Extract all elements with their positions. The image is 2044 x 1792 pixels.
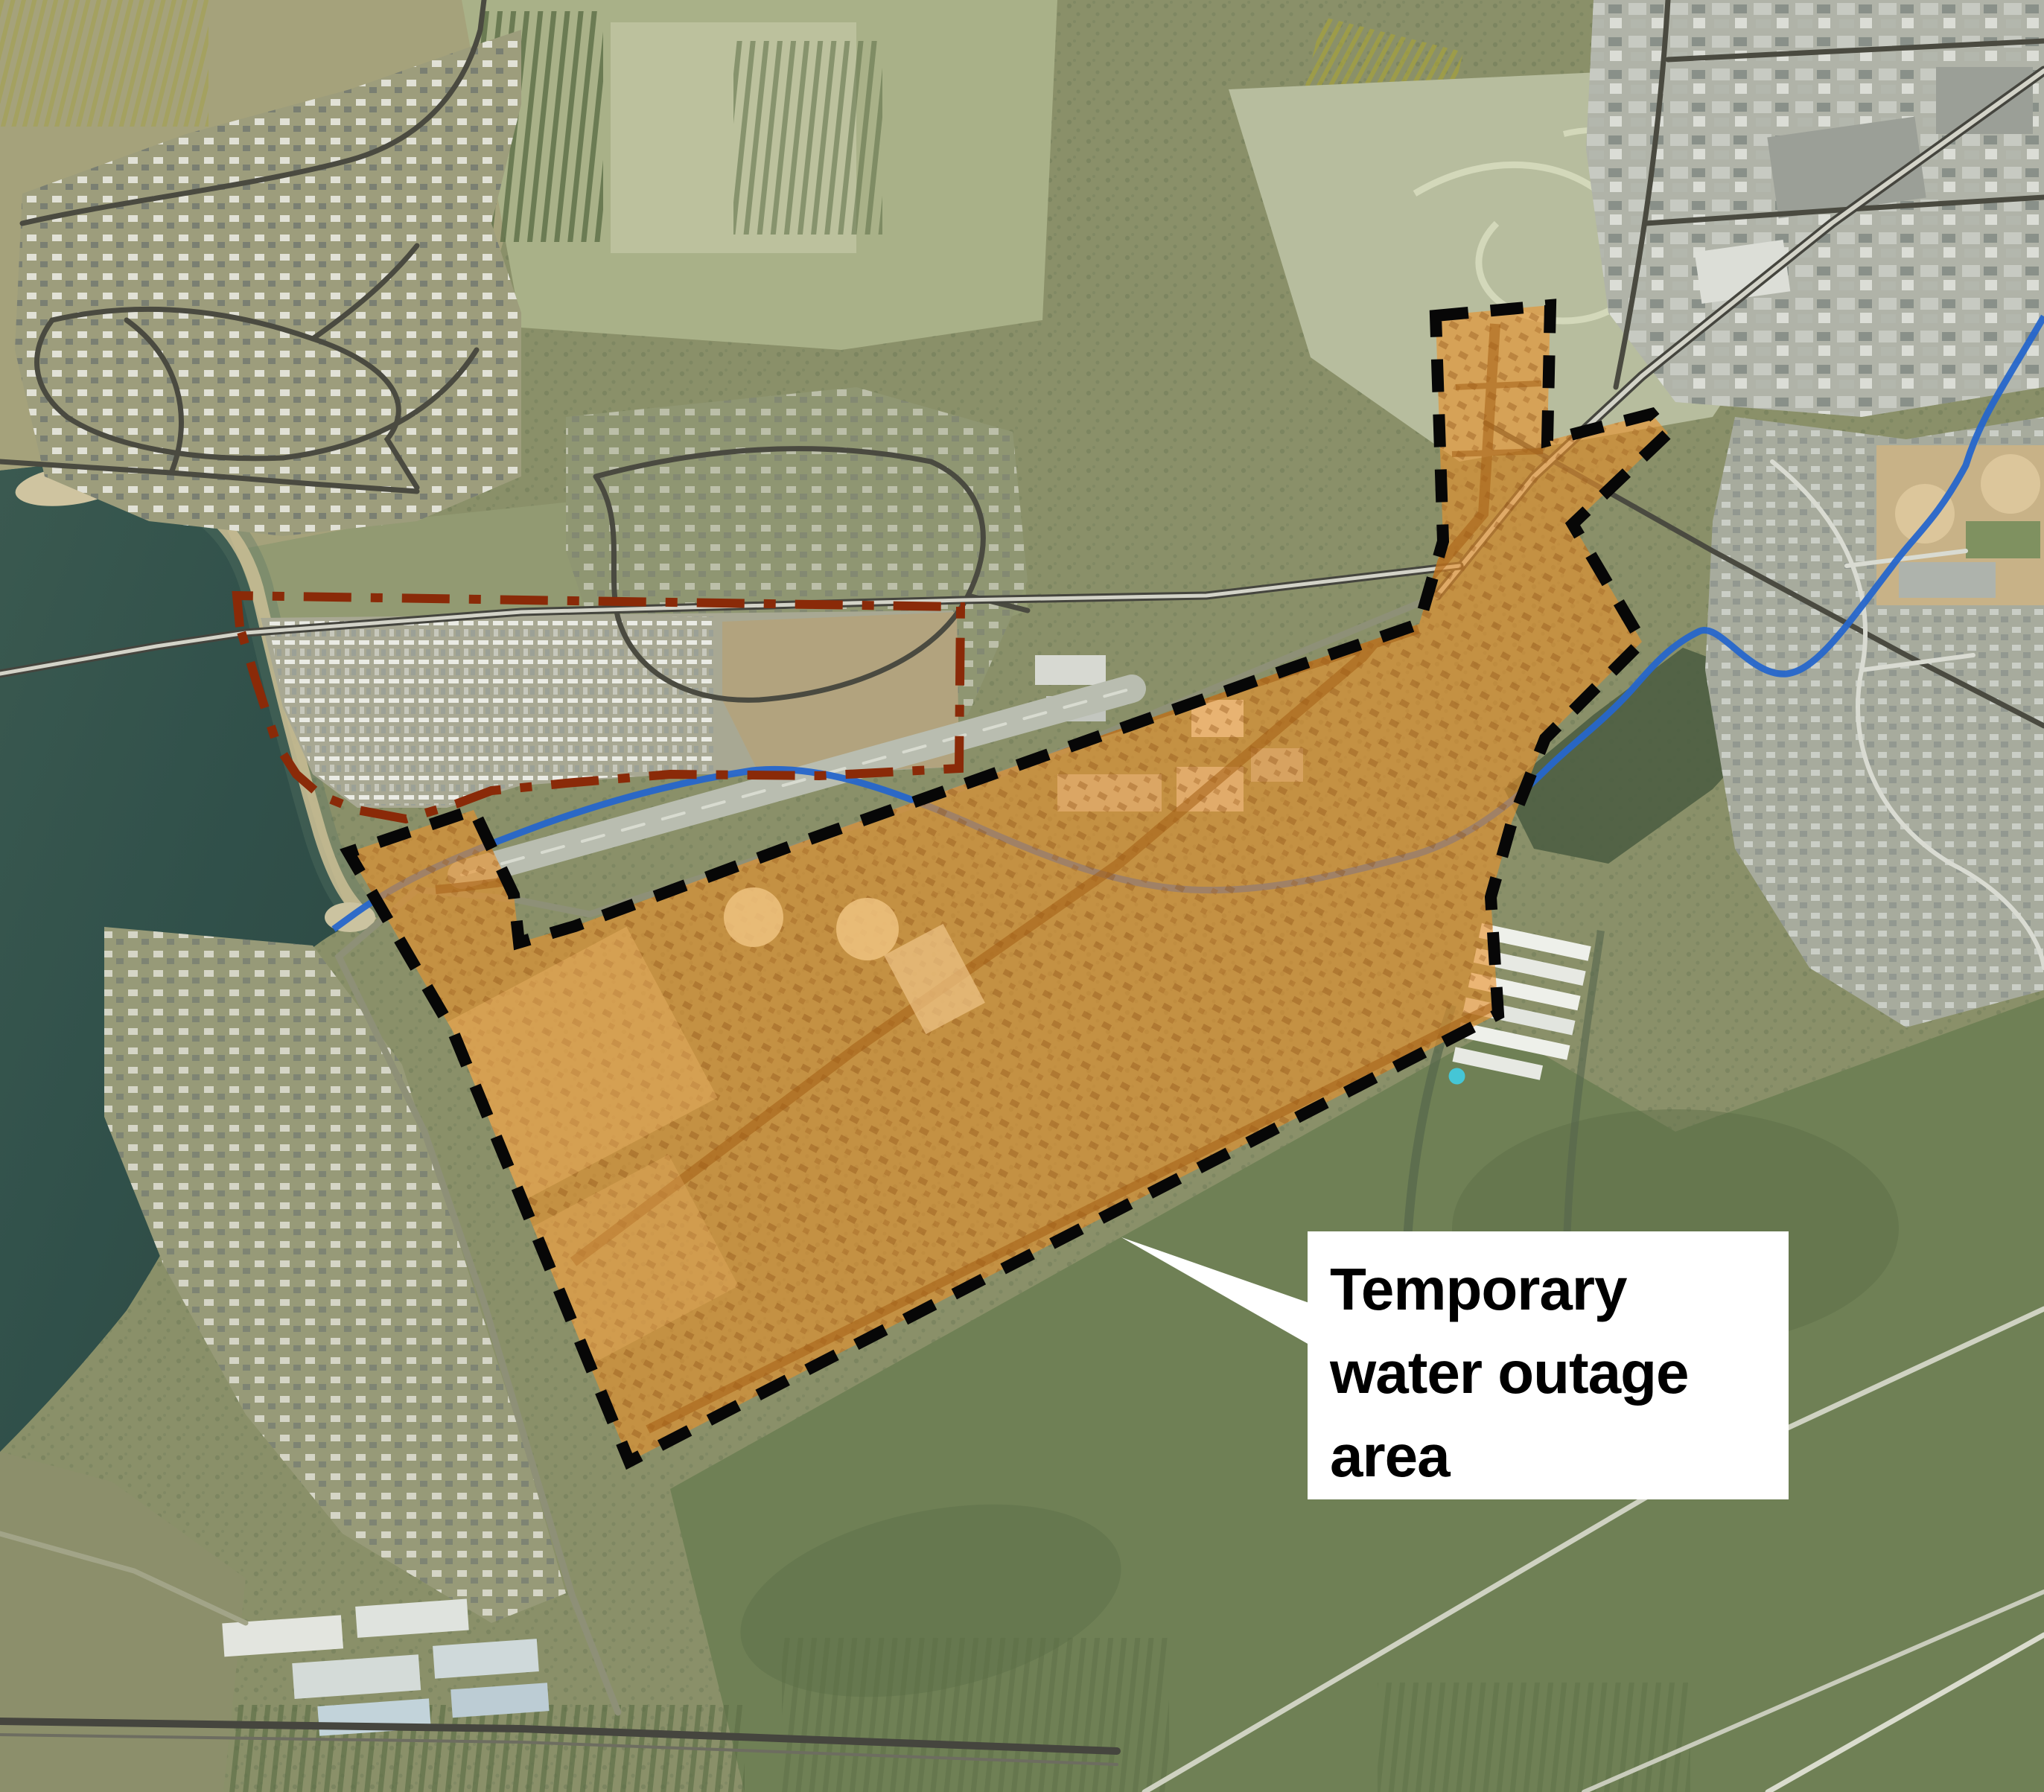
outage-label-line: water outage [1330, 1331, 1777, 1415]
outage-label: Temporary water outage area [1308, 1231, 1789, 1499]
outage-label-line: area [1330, 1415, 1777, 1498]
aerial-map: Temporary water outage area [0, 0, 2044, 1792]
aerial-basemap [0, 0, 2044, 1792]
outage-label-line: Temporary [1330, 1248, 1777, 1331]
